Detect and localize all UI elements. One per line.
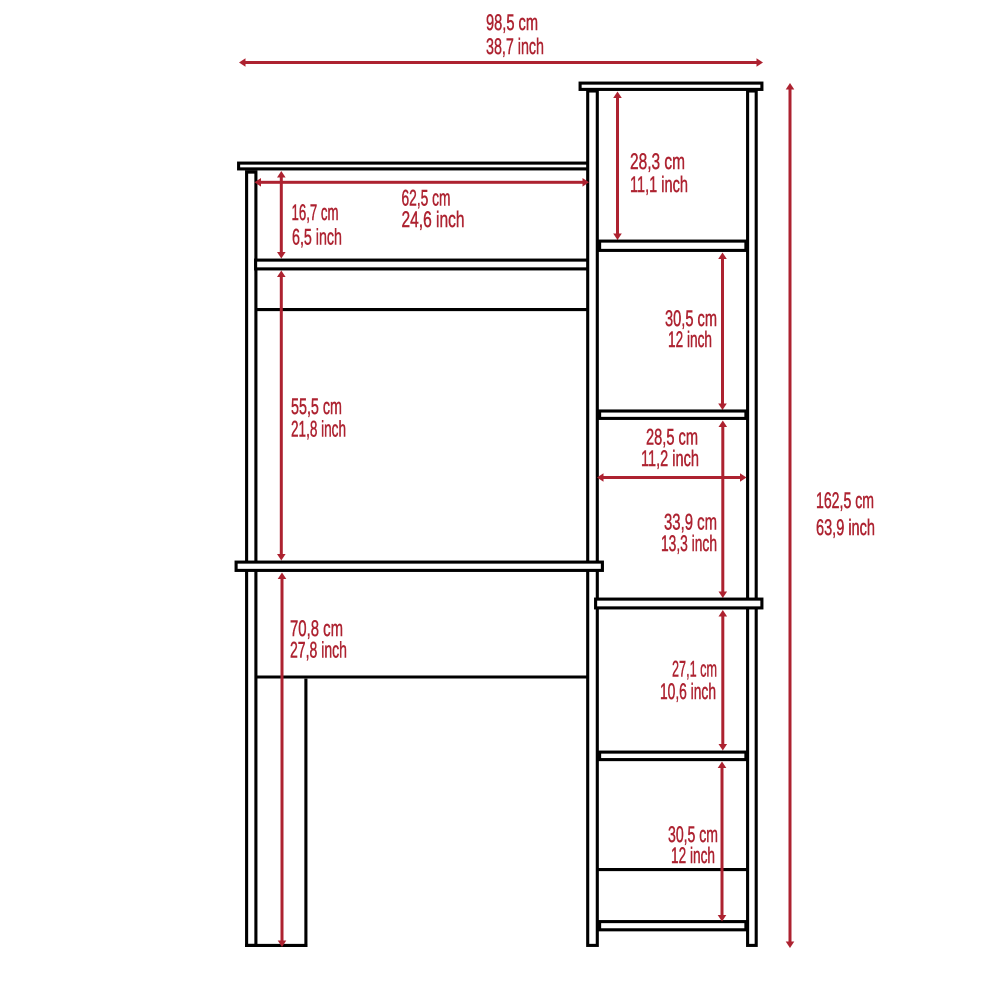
svg-text:16,7 cm: 16,7 cm <box>292 200 339 225</box>
svg-text:27,8 inch: 27,8 inch <box>290 638 347 663</box>
svg-text:11,2 inch: 11,2 inch <box>641 446 699 471</box>
svg-text:12 inch: 12 inch <box>668 327 712 352</box>
svg-text:55,5 cm: 55,5 cm <box>291 394 342 419</box>
svg-text:162,5 cm: 162,5 cm <box>816 488 874 513</box>
svg-text:98,5 cm: 98,5 cm <box>486 10 538 35</box>
svg-text:21,8 inch: 21,8 inch <box>291 417 346 442</box>
svg-text:13,3 inch: 13,3 inch <box>661 531 717 556</box>
svg-text:24,6 inch: 24,6 inch <box>402 207 465 232</box>
svg-text:10,6 inch: 10,6 inch <box>660 679 716 704</box>
svg-text:38,7 inch: 38,7 inch <box>486 34 544 59</box>
svg-text:27,1 cm: 27,1 cm <box>672 657 717 682</box>
svg-text:12 inch: 12 inch <box>671 843 715 868</box>
svg-text:28,3 cm: 28,3 cm <box>630 149 685 174</box>
svg-text:11,1 inch: 11,1 inch <box>630 172 688 197</box>
svg-text:63,9 inch: 63,9 inch <box>816 515 875 540</box>
svg-text:6,5 inch: 6,5 inch <box>292 225 342 250</box>
